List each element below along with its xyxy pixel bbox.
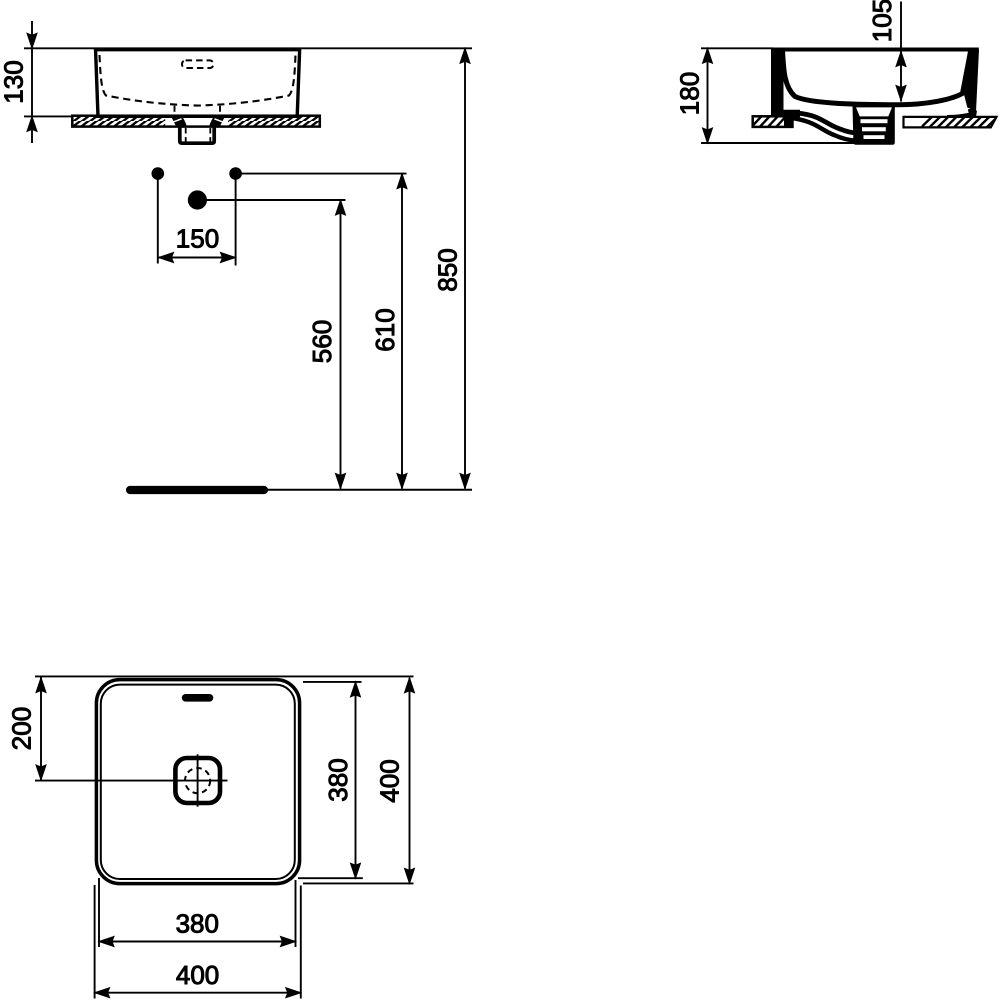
svg-text:180: 180 — [675, 72, 705, 115]
svg-text:105: 105 — [867, 0, 897, 42]
svg-text:130: 130 — [0, 60, 29, 103]
svg-text:380: 380 — [176, 909, 219, 939]
svg-text:380: 380 — [323, 758, 353, 801]
svg-text:150: 150 — [176, 224, 219, 254]
svg-text:850: 850 — [433, 248, 463, 291]
svg-text:400: 400 — [176, 960, 219, 990]
svg-text:200: 200 — [7, 707, 37, 750]
svg-text:400: 400 — [375, 759, 405, 802]
svg-text:610: 610 — [370, 308, 400, 351]
svg-text:560: 560 — [307, 320, 337, 363]
